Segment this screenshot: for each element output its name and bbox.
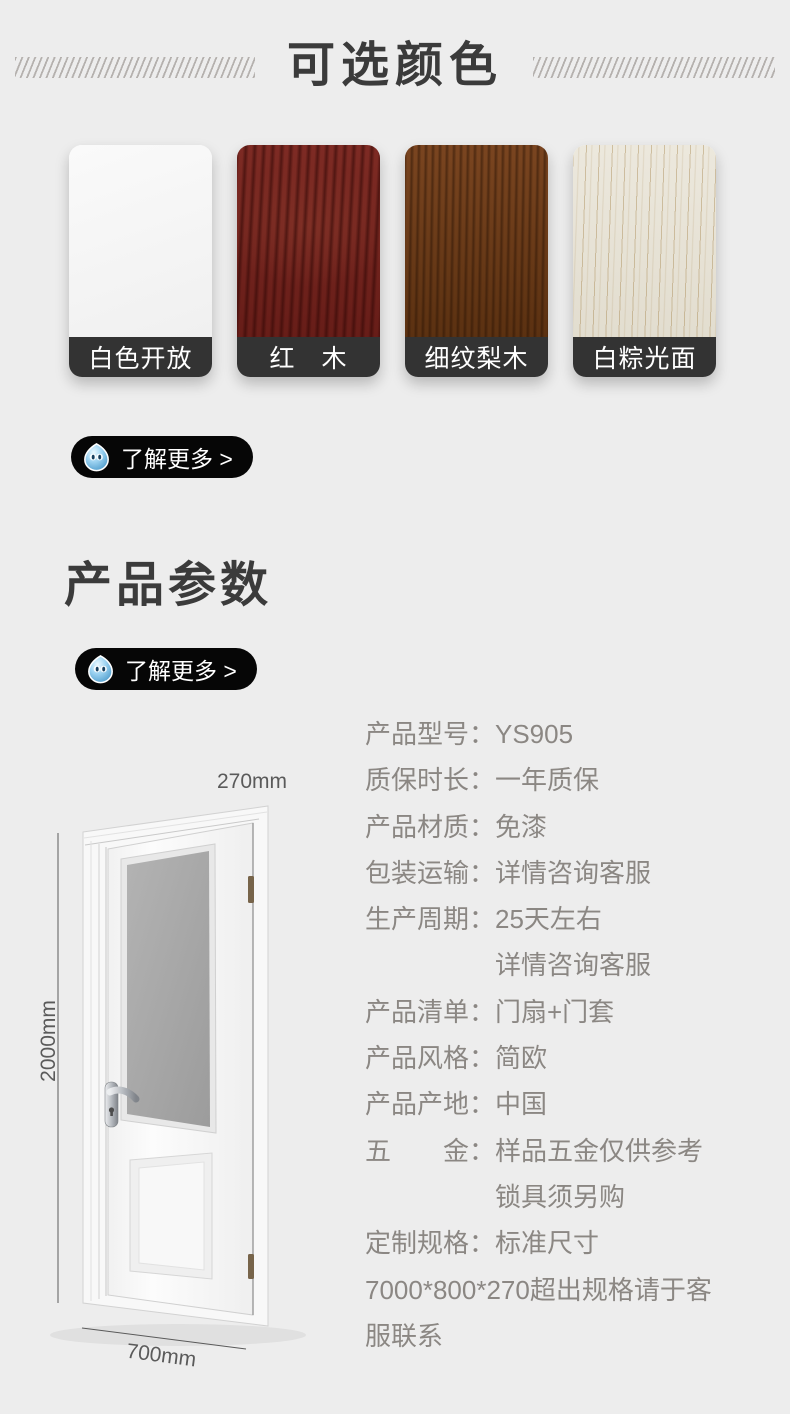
diagonal-hatch-right-icon — [533, 57, 775, 78]
spec-colon: ： — [469, 850, 495, 896]
color-swatch-card: 白色开放 — [69, 145, 212, 377]
spec-value: 门扇+门套 — [495, 997, 614, 1027]
spec-row: 质保时长：一年质保 — [365, 757, 787, 803]
spec-row: 详情咨询客服 — [365, 942, 787, 988]
spec-row: 产品材质：免漆 — [365, 804, 787, 850]
spec-value: 中国 — [495, 1089, 547, 1119]
spec-colon: ： — [469, 1081, 495, 1127]
spec-row: 产品产地：中国 — [365, 1081, 787, 1127]
spec-colon: ： — [469, 989, 495, 1035]
wood-texture-image — [237, 145, 380, 337]
spec-value: 标准尺寸 — [495, 1228, 599, 1258]
spec-colon: ： — [469, 1128, 495, 1174]
spec-colon: ： — [469, 1220, 495, 1266]
spec-row: 五金：样品五金仅供参考 — [365, 1128, 787, 1174]
spec-value: 样品五金仅供参考 — [495, 1136, 703, 1166]
spec-row: 锁具须另购 — [365, 1174, 787, 1220]
swatch-label: 红 木 — [237, 337, 380, 377]
spec-label: 包装运输 — [365, 850, 469, 896]
hinge-icon — [248, 876, 254, 903]
spec-row: 定制规格：标准尺寸 — [365, 1220, 787, 1266]
hinge-icon — [248, 1254, 254, 1279]
spec-value: 一年质保 — [495, 765, 599, 795]
spec-row: 服联系 — [365, 1313, 787, 1359]
wood-texture-image — [405, 145, 548, 337]
spec-value: 详情咨询客服 — [495, 858, 651, 888]
spec-colon: ： — [469, 1035, 495, 1081]
spec-label: 生产周期 — [365, 896, 469, 942]
color-swatch-list: 白色开放 红 木 细纹梨木 白粽光面 — [69, 145, 716, 377]
door-illustration: 270mm 2000mm 700mm — [20, 758, 350, 1383]
spec-label: 产品型号 — [365, 711, 469, 757]
door-dimension-diagram: 270mm 2000mm 700mm — [20, 758, 350, 1383]
spec-colon: ： — [469, 804, 495, 850]
wood-texture-image — [573, 145, 716, 337]
spec-value: 锁具须另购 — [495, 1182, 625, 1212]
spec-row: 产品清单：门扇+门套 — [365, 989, 787, 1035]
params-section-title: 产品参数 — [64, 560, 272, 613]
door-height-dimension: 2000mm — [37, 1000, 60, 1082]
spec-row: 7000*800*270超出规格请于客 — [365, 1267, 787, 1313]
spec-row: 产品风格：简欧 — [365, 1035, 787, 1081]
spec-value: 简欧 — [495, 1043, 547, 1073]
spec-row: 产品型号：YS905 — [365, 711, 787, 757]
swatch-label: 细纹梨木 — [405, 337, 548, 377]
door-width-dimension: 270mm — [217, 770, 287, 793]
spec-value: 详情咨询客服 — [495, 950, 651, 980]
swatch-label: 白色开放 — [69, 337, 212, 377]
color-swatch-card: 白粽光面 — [573, 145, 716, 377]
spec-label: 产品清单 — [365, 989, 469, 1035]
spec-value: YS905 — [495, 719, 573, 749]
spec-colon: ： — [469, 896, 495, 942]
spec-label: 定制规格 — [365, 1220, 469, 1266]
wood-texture-image — [69, 145, 212, 337]
water-drop-icon — [80, 441, 113, 474]
spec-label: 产品风格 — [365, 1035, 469, 1081]
spec-colon: ： — [469, 757, 495, 803]
spec-row: 包装运输：详情咨询客服 — [365, 850, 787, 896]
product-detail-page: 可选颜色 白色开放 红 木 细纹梨木 — [0, 0, 790, 1414]
spec-value: 7000*800*270超出规格请于客 — [365, 1275, 712, 1305]
learn-more-label: 了解更多 > — [125, 652, 237, 686]
learn-more-button[interactable]: 了解更多 > — [75, 648, 257, 690]
spec-value: 25天左右 — [495, 904, 602, 934]
water-drop-icon — [84, 653, 117, 686]
learn-more-label: 了解更多 > — [121, 440, 233, 474]
swatch-label: 白粽光面 — [573, 337, 716, 377]
learn-more-button[interactable]: 了解更多 > — [71, 436, 253, 478]
color-swatch-card: 细纹梨木 — [405, 145, 548, 377]
spec-label: 产品产地 — [365, 1081, 469, 1127]
spec-row: 生产周期：25天左右 — [365, 896, 787, 942]
spec-label: 产品材质 — [365, 804, 469, 850]
spec-list: 产品型号：YS905 质保时长：一年质保 产品材质：免漆 包装运输：详情咨询客服… — [365, 711, 787, 1359]
color-swatch-card: 红 木 — [237, 145, 380, 377]
spec-value: 服联系 — [365, 1321, 443, 1351]
spec-label: 质保时长 — [365, 757, 469, 803]
spec-colon: ： — [469, 711, 495, 757]
spec-value: 免漆 — [495, 812, 547, 842]
spec-label: 五金 — [365, 1128, 469, 1174]
